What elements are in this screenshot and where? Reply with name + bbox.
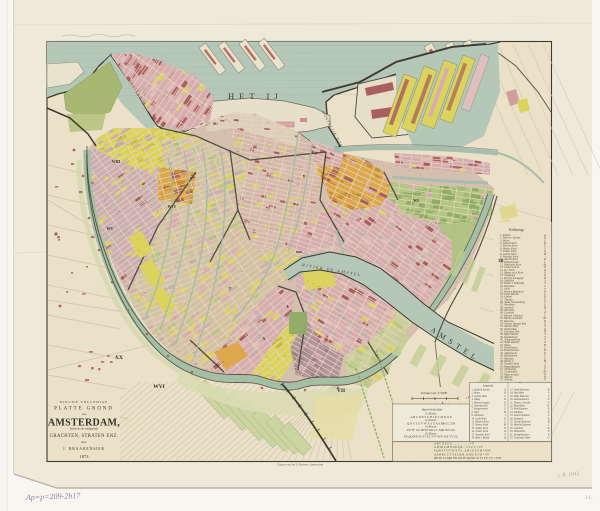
- svg-text:16. Huis v Bewar: 16. Huis v Bewar: [472, 437, 491, 440]
- svg-text:PLATTE GROND: PLATTE GROND: [54, 407, 114, 412]
- svg-text:NIEUWE VOLLEDIGE: NIEUWE VOLLEDIGE: [60, 400, 108, 404]
- svg-text:WI: WI: [413, 198, 419, 203]
- svg-text:PP QQ RR SS TT UU VV WW XX YY: PP QQ RR SS TT UU VV WW XX YY ZZ: [404, 435, 458, 439]
- svg-text:Legenda: Legenda: [482, 384, 494, 388]
- svg-text:Y: Y: [303, 175, 306, 179]
- svg-text:GRACHTEN, STRATEN ENZ.: GRACHTEN, STRATEN ENZ.: [50, 434, 119, 439]
- svg-text:EB: EB: [498, 259, 504, 263]
- svg-text:55. Tolhuis: 55. Tolhuis: [500, 379, 512, 382]
- svg-text:XX: XX: [115, 355, 123, 361]
- svg-text:door: door: [81, 440, 87, 444]
- svg-text:T: T: [229, 287, 232, 291]
- svg-text:Verklaring: Verklaring: [508, 228, 523, 232]
- svg-text:U: U: [286, 304, 289, 309]
- svg-text:BB EE LL MM NN OO PP QQ RR SS: BB EE LL MM NN OO PP QQ RR SS TT UU VV =…: [434, 456, 502, 460]
- svg-text:Q: Q: [504, 437, 506, 440]
- svg-text:WV: WV: [107, 226, 114, 231]
- svg-text:G: G: [548, 437, 550, 440]
- svg-text:3 L.: 3 L.: [585, 496, 593, 501]
- svg-text:32. Gemeente Werk: 32. Gemeente Werk: [510, 437, 531, 440]
- svg-text:van: van: [82, 412, 87, 416]
- svg-text:WVI: WVI: [153, 384, 165, 390]
- svg-text:WIII: WIII: [112, 160, 121, 164]
- svg-text:benevens de omliggende: benevens de omliggende: [70, 427, 99, 431]
- svg-text:Schaal van 1:5000: Schaal van 1:5000: [421, 391, 447, 395]
- svg-text:HET IJ: HET IJ: [228, 91, 283, 101]
- svg-text:Uitgave van Jan D. Brouwer, Am: Uitgave van Jan D. Brouwer, Amsterdam: [277, 464, 324, 467]
- svg-text:VII: VII: [337, 388, 345, 394]
- svg-text:J. BRAAKENSIEK: J. BRAAKENSIEK: [63, 447, 105, 451]
- svg-text:1873: 1873: [80, 454, 90, 459]
- svg-text:WIV: WIV: [168, 204, 177, 209]
